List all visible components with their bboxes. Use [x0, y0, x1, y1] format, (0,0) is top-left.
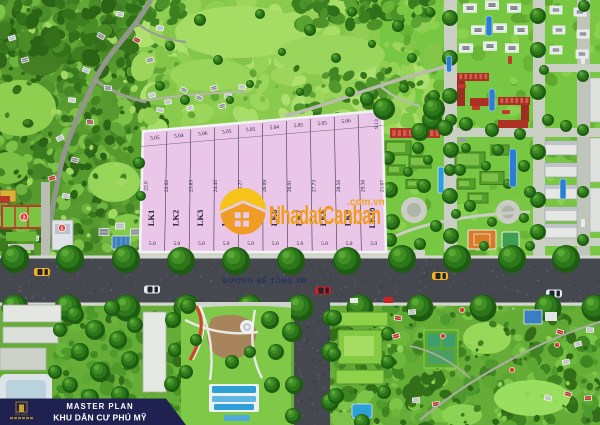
svg-text:LK2: LK2 — [170, 210, 180, 227]
svg-text:5.0: 5.0 — [297, 241, 304, 247]
svg-text:21.07: 21.07 — [380, 180, 386, 192]
svg-text:9.13: 9.13 — [374, 119, 380, 129]
svg-text:5.05: 5.05 — [222, 129, 232, 136]
svg-text:5.05: 5.05 — [317, 120, 327, 127]
svg-text:5.06: 5.06 — [198, 131, 208, 138]
svg-text:29.38: 29.38 — [361, 180, 367, 192]
svg-text:5.04: 5.04 — [174, 133, 184, 140]
svg-text:5.0: 5.0 — [198, 241, 205, 247]
svg-text:5.0: 5.0 — [247, 241, 254, 247]
svg-text:23.63: 23.63 — [188, 180, 194, 192]
svg-text:22.82: 22.82 — [164, 180, 170, 192]
svg-text:LK1: LK1 — [146, 210, 156, 227]
svg-text:MASTER PLAN: MASTER PLAN — [66, 402, 133, 411]
svg-text:KHU DÂN CƯ PHÚ MỸ: KHU DÂN CƯ PHÚ MỸ — [53, 412, 147, 423]
svg-text:PMT LAND: PMT LAND — [15, 413, 28, 417]
svg-text:24.45: 24.45 — [213, 180, 219, 192]
svg-text:LK3: LK3 — [195, 210, 205, 227]
svg-text:5.05: 5.05 — [293, 122, 303, 129]
svg-text:5.04: 5.04 — [269, 124, 279, 131]
svg-text:22.0: 22.0 — [144, 181, 150, 191]
svg-text:28.56: 28.56 — [336, 180, 342, 192]
svg-text:5.05: 5.05 — [246, 127, 256, 134]
svg-text:5.0: 5.0 — [272, 241, 279, 247]
svg-text:5.0: 5.0 — [370, 241, 377, 247]
svg-text:5: 5 — [61, 226, 64, 232]
svg-text:5.0: 5.0 — [223, 241, 230, 247]
svg-text:.com.vn: .com.vn — [347, 197, 385, 208]
svg-text:5.0: 5.0 — [346, 241, 353, 247]
svg-text:27.73: 27.73 — [311, 180, 317, 192]
svg-text:26.09: 26.09 — [262, 180, 268, 192]
svg-text:ĐƯỜNG BÊ TÔNG 3M: ĐƯỜNG BÊ TÔNG 3M — [223, 276, 307, 285]
svg-text:5.0: 5.0 — [321, 241, 328, 247]
svg-text:5.0: 5.0 — [174, 241, 181, 247]
svg-text:5.05: 5.05 — [150, 135, 160, 142]
svg-text:2: 2 — [22, 216, 25, 222]
svg-text:5.0: 5.0 — [149, 241, 156, 247]
svg-text:5.06: 5.06 — [341, 118, 351, 125]
svg-text:26.91: 26.91 — [287, 180, 293, 192]
